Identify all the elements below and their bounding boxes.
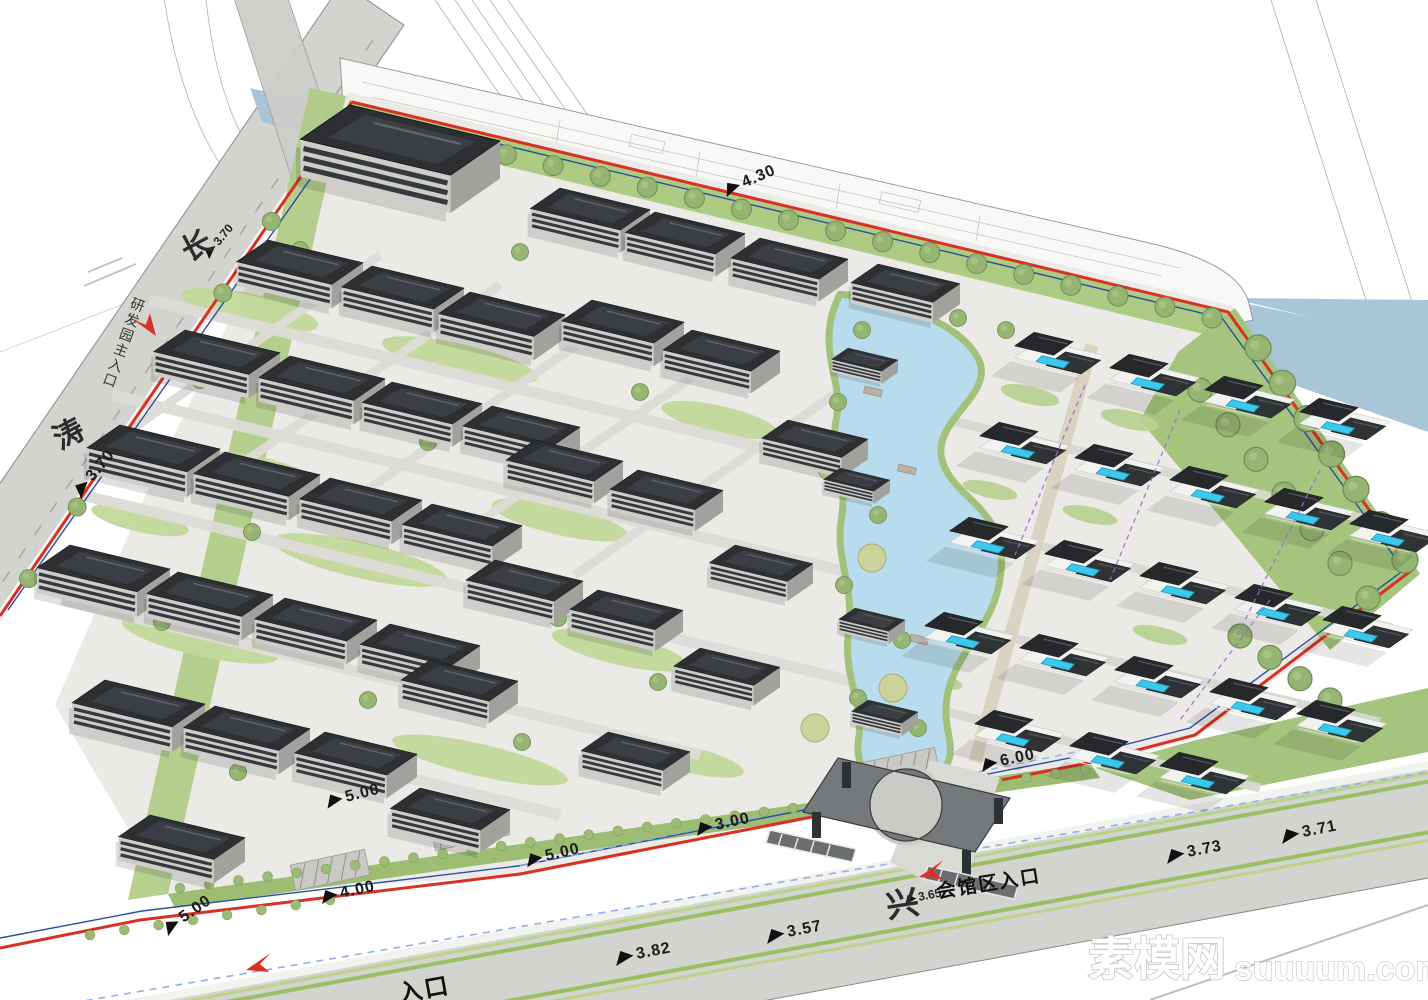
bush [642,822,652,832]
tree [1288,667,1312,691]
bush [222,910,232,920]
tree [1202,308,1222,328]
tree [1155,297,1175,317]
tree-yellow [858,544,886,572]
tree [779,210,799,230]
tree [854,322,871,339]
bush [85,930,95,940]
tree [1270,370,1296,396]
tree [1245,335,1271,361]
bush [380,857,390,867]
tree-yellow [801,714,829,742]
bush [321,864,331,874]
tree [1258,645,1282,669]
bush [671,818,681,828]
tree [826,221,846,241]
tree [543,156,563,176]
watermark-domain: suuuum.com [1234,950,1428,988]
road-name-char: 兴 [883,883,921,925]
masterplan-svg: 4.30 3.70 3.70 5.00 5.00 4.00 5.00 3.00 … [0,0,1428,1000]
tree [830,394,847,411]
tree [836,577,853,594]
tree [870,507,887,524]
bush [788,803,798,813]
tree [590,166,610,186]
bush [555,834,565,844]
tree [731,199,751,219]
bush [496,841,506,851]
tree [1014,264,1034,284]
tree [244,524,261,541]
bush [263,872,273,882]
tree [998,322,1015,339]
tree [873,232,893,252]
tree [512,244,529,261]
bush [525,837,535,847]
bush [613,826,623,836]
bush [154,920,164,930]
watermark: 素模网 suuuum.com [1088,933,1428,988]
tree [68,498,86,516]
bush [175,883,185,893]
tree [650,674,667,691]
masterplan-rendering: 4.30 3.70 3.70 5.00 5.00 4.00 5.00 3.00 … [0,0,1428,1000]
watermark-site-name: 素模网 [1088,933,1226,985]
tree [920,243,940,263]
tree [360,692,377,709]
faint-annotation-lines [84,258,136,286]
bush [584,830,594,840]
tree [967,254,987,274]
bush [1022,773,1032,783]
tree [1061,275,1081,295]
tree [1244,447,1268,471]
bush [759,807,769,817]
tree [262,212,280,230]
bush [234,876,244,886]
bush [257,905,267,915]
tree [1108,286,1128,306]
tree [684,188,704,208]
tree [632,384,649,401]
bush [292,868,302,878]
tree [637,177,657,197]
tree [214,284,232,302]
tree [1356,586,1380,610]
tree-yellow [879,674,907,702]
bush [350,860,360,870]
bush [291,900,301,910]
tree [1343,476,1369,502]
tree [514,734,531,751]
bush [119,925,129,935]
tree [950,310,967,327]
bush [409,853,419,863]
